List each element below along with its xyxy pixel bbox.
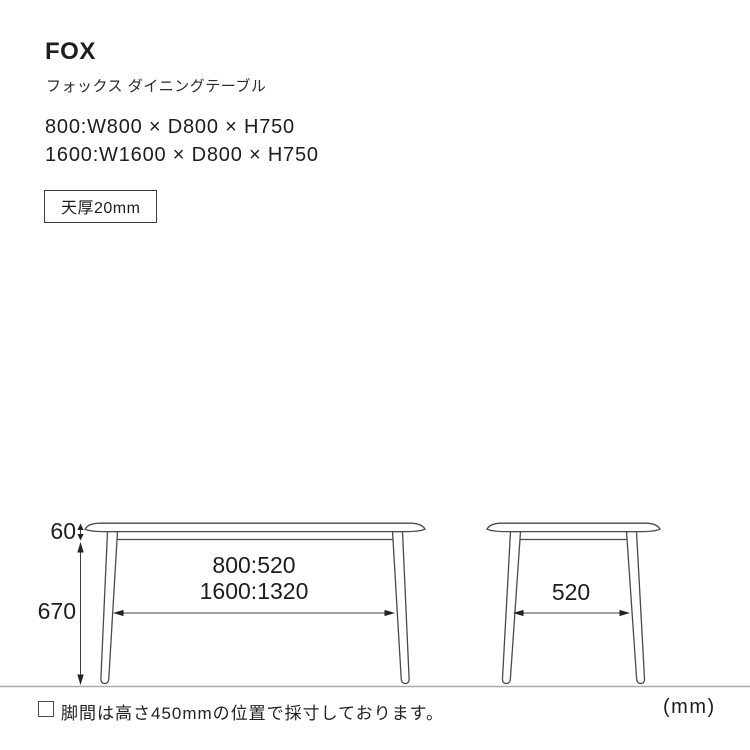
front-right-leg bbox=[393, 532, 410, 684]
dimension-arrows bbox=[77, 524, 630, 686]
dim-label-leg-height: 670 bbox=[30, 599, 76, 623]
dimension-drawing bbox=[0, 0, 750, 750]
side-tabletop bbox=[487, 523, 660, 531]
dim-arrow-670 bbox=[77, 542, 83, 685]
side-right-leg bbox=[627, 532, 645, 684]
dim-label-side-span: 520 bbox=[552, 580, 590, 604]
note-square-icon bbox=[38, 701, 54, 717]
dim-label-apron-height: 60 bbox=[40, 519, 76, 543]
dim-arrow-front-span bbox=[113, 610, 395, 616]
dim-arrow-side-span bbox=[513, 610, 630, 616]
front-left-leg bbox=[101, 532, 118, 684]
dim-label-front-span-800: 800:520 bbox=[212, 553, 295, 577]
measurement-note: 脚間は高さ450mmの位置で採寸しております。 bbox=[61, 699, 444, 724]
spec-sheet: FOX フォックス ダイニングテーブル 800:W800 × D800 × H7… bbox=[0, 0, 750, 750]
dim-label-front-span-1600: 1600:1320 bbox=[200, 579, 309, 603]
side-left-leg bbox=[502, 532, 520, 684]
front-tabletop bbox=[85, 523, 425, 531]
unit-label: (mm) bbox=[663, 696, 716, 719]
dim-arrow-60 bbox=[77, 524, 83, 541]
